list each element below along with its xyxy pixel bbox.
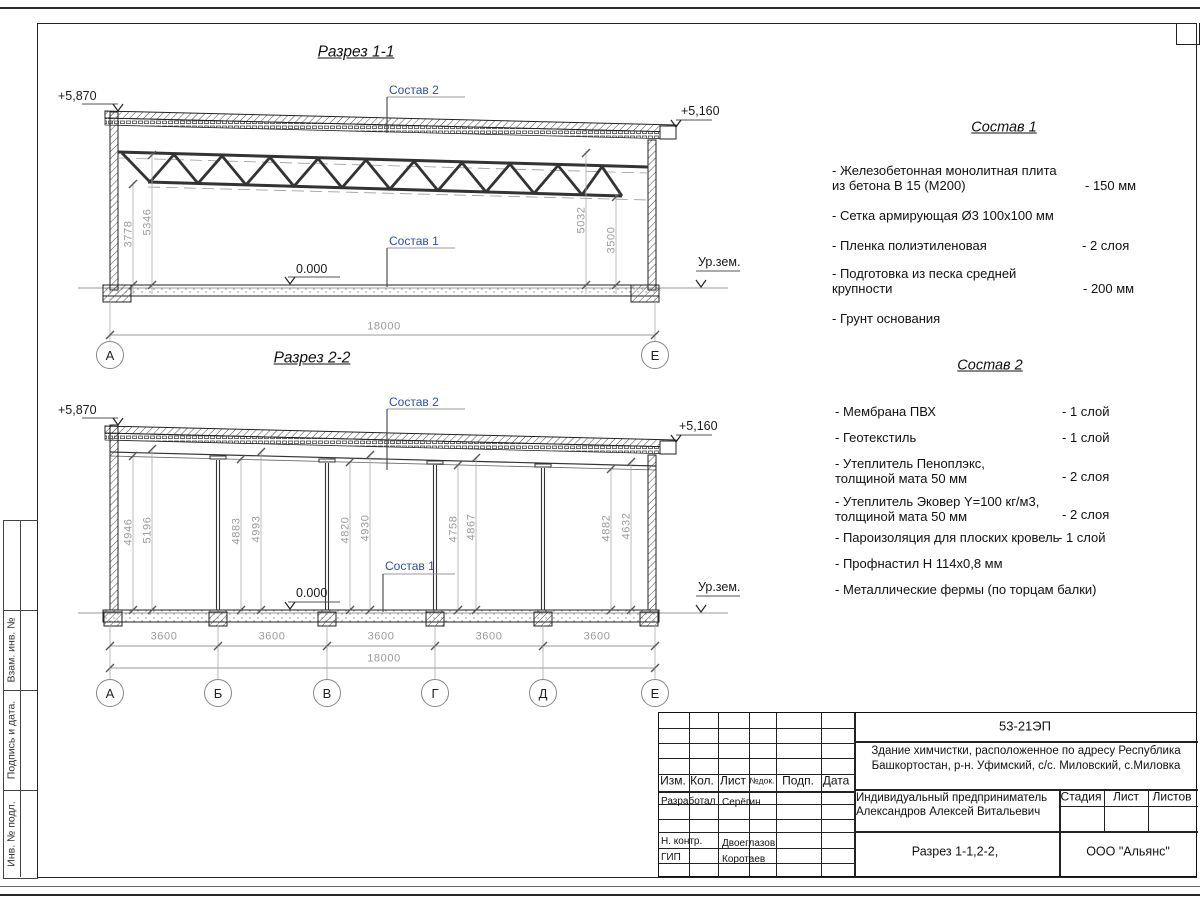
axis-bubble-2-b: Б bbox=[204, 679, 232, 707]
axis-label: Б bbox=[214, 686, 223, 701]
s2-pair3-a: 4820 bbox=[339, 517, 354, 544]
sostav1-title: Состав 1 bbox=[971, 121, 1036, 136]
s2-pair1-a: 4946 bbox=[122, 519, 137, 546]
tb-line bbox=[854, 741, 1198, 743]
axis-bubble-2-d: Д bbox=[529, 679, 557, 707]
sostav2-value-3: - 2 слоя bbox=[1062, 469, 1109, 484]
axis-label: В bbox=[323, 686, 332, 701]
sostav1-item-4: - Подготовка из песка средней крупности bbox=[832, 266, 1016, 296]
tb-client: Индивидуальный предприниматель Александр… bbox=[856, 792, 1062, 819]
tb-line bbox=[776, 713, 777, 878]
section2-elev-right: +5,160 bbox=[679, 419, 718, 434]
axis-bubble-2-g: Г bbox=[421, 679, 449, 707]
sostav2-item-3: - Утеплитель Пеноплэкс, толщиной мата 50… bbox=[835, 456, 985, 486]
tb-col-podp: Подп. bbox=[782, 774, 814, 789]
section2-zero-mark: 0.000 bbox=[296, 586, 327, 601]
drawing-sheet: Взам. инв. № Подпись и дата. Инв. № подл… bbox=[0, 0, 1200, 900]
axis-label: Д bbox=[539, 686, 548, 701]
axis-label: Е bbox=[651, 686, 660, 701]
section1-dim-total: 18000 bbox=[367, 320, 401, 335]
axis-label: А bbox=[106, 348, 115, 363]
tb-line bbox=[659, 758, 854, 759]
sostav1-item-1: - Железобетонная монолитная плита из бет… bbox=[832, 163, 1057, 193]
tb-line bbox=[854, 789, 1198, 791]
tb-role-razrabotal: Разработал bbox=[661, 794, 715, 809]
tb-col-ndok: №док. bbox=[750, 774, 775, 789]
s2-pair4-b: 4867 bbox=[465, 514, 480, 541]
tb-name-korotaev: Коротаев bbox=[722, 852, 765, 867]
tb-col-izm: Изм. bbox=[660, 774, 686, 789]
s2-pair4-a: 4758 bbox=[447, 516, 462, 543]
section2-callout-floor: Состав 1 bbox=[385, 559, 435, 574]
sostav1-value-4: - 200 мм bbox=[1083, 281, 1134, 296]
sostav1-item-5: - Грунт основания bbox=[832, 311, 940, 326]
section1-zero-mark: 0.000 bbox=[296, 262, 327, 277]
section1-dim-5346: 5346 bbox=[141, 209, 156, 236]
section2-callout-roof: Состав 2 bbox=[389, 395, 439, 410]
tb-line bbox=[1104, 789, 1105, 831]
tb-line bbox=[718, 713, 719, 878]
axis-bubble-2-a: А bbox=[96, 679, 124, 707]
tb-stage-col: Стадия bbox=[1061, 790, 1102, 805]
s2-bay-dim-3: 3600 bbox=[368, 630, 395, 645]
section1-dim-3778: 3778 bbox=[122, 221, 137, 248]
tb-line bbox=[659, 728, 854, 729]
sostav2-item-2: - Геотекстиль bbox=[835, 430, 916, 445]
axis-bubble-2-e: Е bbox=[641, 679, 669, 707]
tb-line bbox=[659, 743, 854, 744]
axis-label: Г bbox=[431, 686, 438, 701]
s2-pair3-b: 4930 bbox=[359, 515, 374, 542]
tb-object-name: Здание химчистки, расположенное по адрес… bbox=[856, 744, 1196, 773]
tb-line bbox=[1059, 806, 1198, 807]
section1-callout-floor: Состав 1 bbox=[389, 234, 439, 249]
sostav2-item-6: - Профнастил Н 114х0,8 мм bbox=[835, 556, 1003, 571]
axis-label: А bbox=[106, 686, 115, 701]
sostav1-value-1: - 150 мм bbox=[1085, 178, 1136, 193]
sostav2-value-1: - 1 слой bbox=[1062, 404, 1110, 419]
section1-elev-left: +5,870 bbox=[58, 89, 97, 104]
tb-role-nkontr: Н. контр. bbox=[661, 834, 702, 849]
tb-line bbox=[659, 832, 854, 833]
axis-bubble-1-e: Е bbox=[641, 341, 669, 369]
sostav2-item-7: - Металлические фермы (по торцам балки) bbox=[835, 582, 1096, 597]
tb-company: ООО "Альянс" bbox=[1086, 845, 1170, 860]
section2-title: Разрез 2-2 bbox=[274, 351, 351, 366]
tb-list-col: Лист bbox=[1113, 790, 1139, 805]
axis-label: Е bbox=[651, 348, 660, 363]
tb-line bbox=[821, 713, 822, 878]
axis-bubble-2-v: В bbox=[313, 679, 341, 707]
tb-name-dvoeglazov: Двоеглазов bbox=[722, 836, 775, 851]
s2-pair1-b: 5196 bbox=[141, 517, 156, 544]
sostav2-title: Состав 2 bbox=[957, 359, 1022, 374]
section1-elev-right: +5,160 bbox=[681, 104, 720, 119]
s2-pair2-a: 4883 bbox=[230, 518, 245, 545]
tb-col-kol: Кол. bbox=[690, 774, 714, 789]
tb-role-gip: ГИП bbox=[661, 850, 681, 865]
sostav1-item-2: - Сетка армирующая Ø3 100х100 мм bbox=[832, 208, 1054, 223]
sostav2-item-4: - Утеплитель Эковер Y=100 кг/м3, толщино… bbox=[835, 494, 1039, 524]
section1-callout-roof: Состав 2 bbox=[389, 83, 439, 98]
sostav2-value-5: - 1 слой bbox=[1058, 530, 1106, 545]
tb-line bbox=[854, 831, 1198, 833]
sostav2-item-5: - Пароизоляция для плоских кровель bbox=[835, 530, 1059, 545]
s2-dim-total: 18000 bbox=[367, 652, 401, 667]
s2-pair5-b: 4632 bbox=[620, 513, 635, 540]
section2-ground-label: Ур.зем. bbox=[698, 580, 740, 595]
tb-line bbox=[659, 819, 854, 820]
tb-listov-col: Листов bbox=[1153, 790, 1192, 805]
tb-name-seregin: Серёгин bbox=[722, 795, 761, 810]
section1-dim-3500: 3500 bbox=[605, 227, 620, 254]
sostav2-value-4: - 2 слоя bbox=[1062, 507, 1109, 522]
sostav2-item-1: - Мембрана ПВХ bbox=[835, 404, 936, 419]
s2-bay-dim-5: 3600 bbox=[584, 630, 611, 645]
s2-bay-dim-1: 3600 bbox=[151, 630, 178, 645]
section1-dim-5032: 5032 bbox=[575, 207, 590, 234]
s2-pair5-a: 4882 bbox=[600, 515, 615, 542]
section1-ground-label: Ур.зем. bbox=[698, 255, 740, 270]
section1-drawing bbox=[78, 97, 740, 342]
tb-line bbox=[1148, 789, 1149, 831]
tb-line bbox=[659, 791, 854, 793]
sostav1-item-3: - Пленка полиэтиленовая bbox=[832, 238, 987, 253]
s2-bay-dim-4: 3600 bbox=[476, 630, 503, 645]
tb-doc-number: 53-21ЭП bbox=[999, 719, 1051, 734]
tb-sheet-title: Разрез 1-1,2-2, bbox=[912, 845, 998, 860]
s2-pair2-b: 4993 bbox=[250, 516, 265, 543]
s2-bay-dim-2: 3600 bbox=[259, 630, 286, 645]
section1-title: Разрез 1-1 bbox=[318, 45, 395, 60]
section2-elev-left: +5,870 bbox=[58, 403, 97, 418]
tb-col-list: Лист bbox=[720, 774, 746, 789]
tb-col-data: Дата bbox=[823, 774, 850, 789]
sostav1-value-3: - 2 слоя bbox=[1082, 238, 1129, 253]
axis-bubble-1-a: А bbox=[96, 341, 124, 369]
sostav2-value-2: - 1 слой bbox=[1062, 430, 1110, 445]
